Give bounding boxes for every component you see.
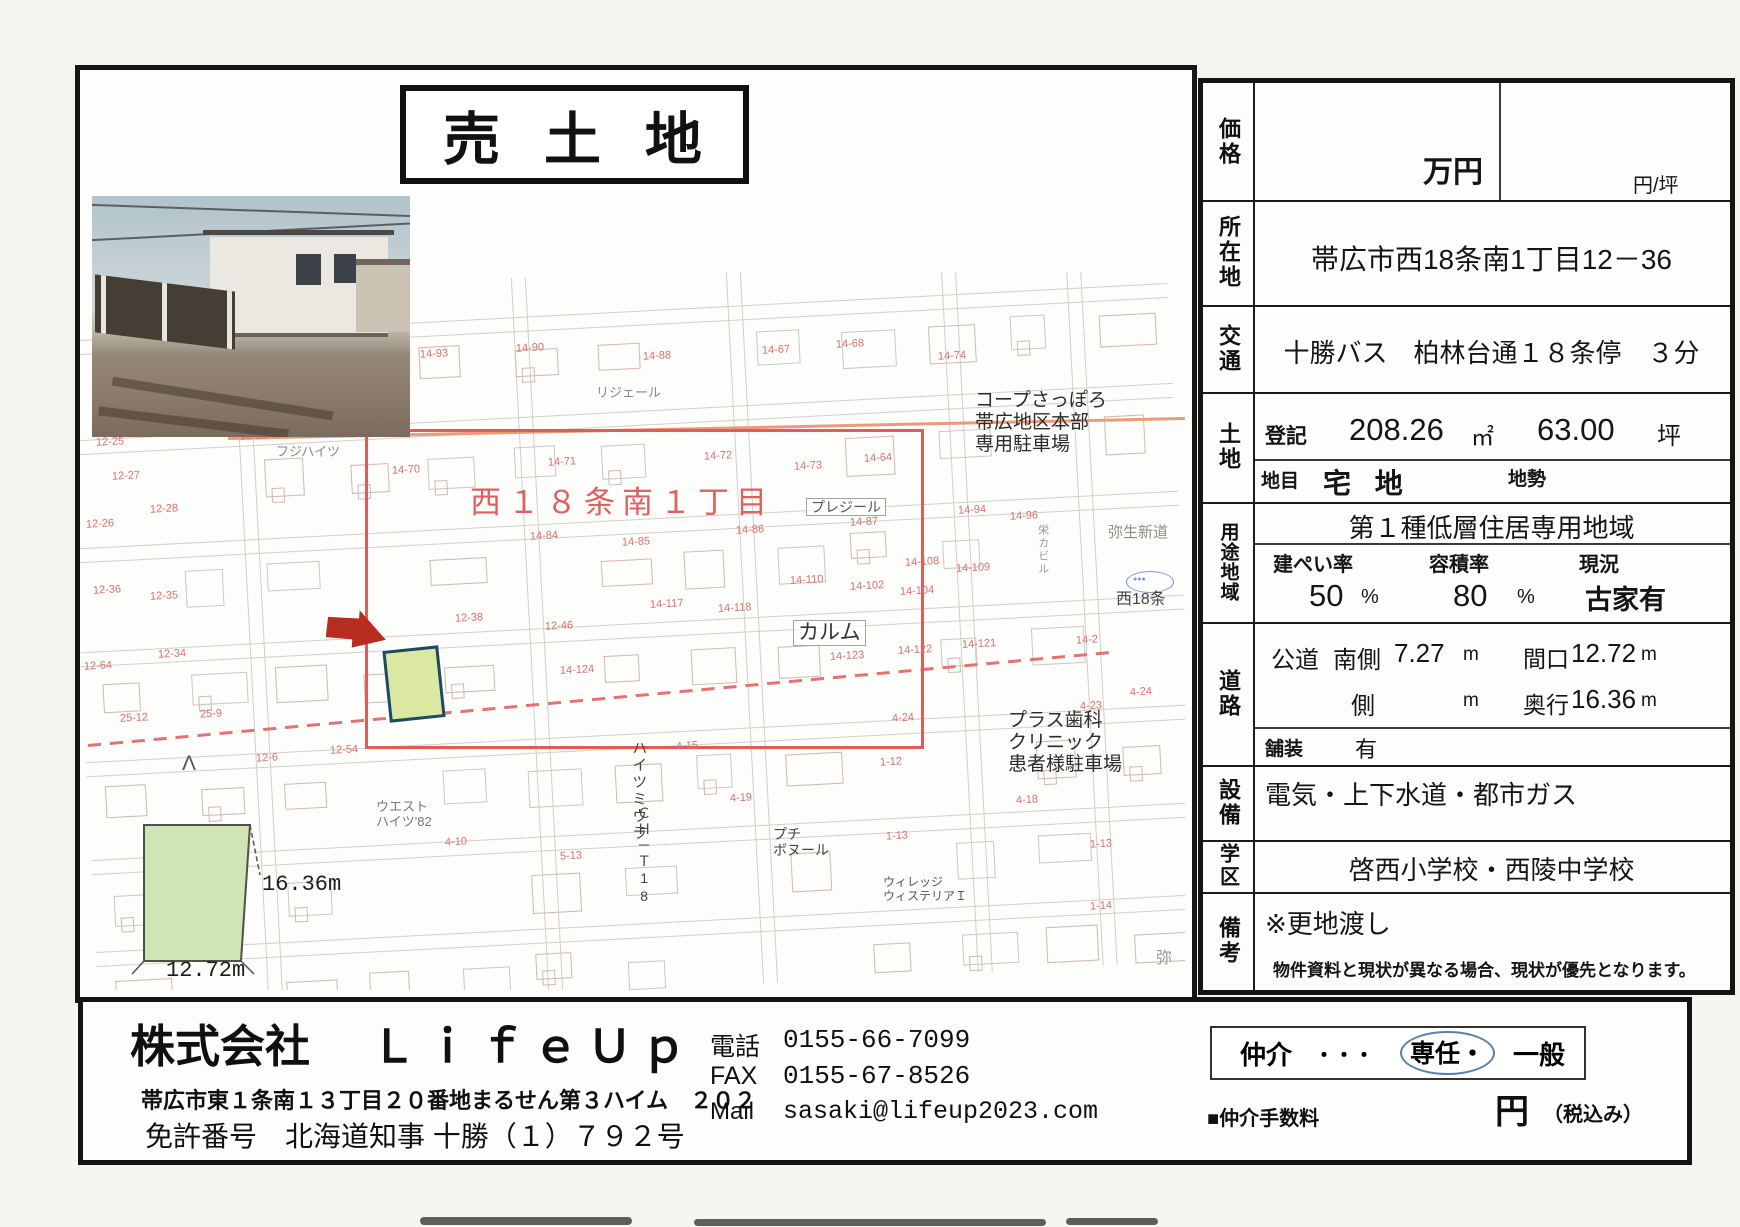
row-utilities-label: 設備 xyxy=(1203,765,1253,840)
page-title: 売 土 地 xyxy=(443,94,716,176)
row-school: 学区 啓西小学校・西陵中学校 xyxy=(1203,840,1730,894)
row-land: 土地 登記 208.26 ㎡ 63.00 坪 地目 宅 地 地勢 xyxy=(1203,392,1730,504)
property-table: 価格 万円 円/坪 所在地 帯広市西18条南1丁目12－36 交通 十勝バス 柏… xyxy=(1198,78,1735,995)
far-value: 80 xyxy=(1453,578,1487,614)
access-value: 十勝バス 柏林台通１８条停 ３分 xyxy=(1253,333,1730,370)
price-per-tsubo-unit: 円/坪 xyxy=(1633,169,1679,198)
company-address: 帯広市東１条南１３丁目２０番地まるせん第３ハイム ２０２ xyxy=(141,1083,756,1115)
road-type: 公道 xyxy=(1271,640,1319,675)
phone-label: 電話 xyxy=(710,1027,760,1063)
company-prefix: 株式会社 xyxy=(130,1010,310,1075)
bcr-label: 建ぺい率 xyxy=(1273,548,1353,577)
paving-label: 舗装 xyxy=(1265,734,1303,761)
company-footer: 株式会社 ＬｉｆｅＵｐ 帯広市東１条南１３丁目２０番地まるせん第３ハイム ２０２… xyxy=(78,997,1692,1165)
land-area-tsubo: 63.00 xyxy=(1537,412,1615,448)
license-number: 免許番号 北海道知事 十勝（１）７９２号 xyxy=(145,1115,685,1155)
powerline xyxy=(92,204,410,219)
scan-artifact xyxy=(420,1217,632,1225)
broker-ippan: 一般 xyxy=(1513,1035,1565,1072)
location-value: 帯広市西18条南1丁目12－36 xyxy=(1253,238,1730,278)
broker-sennin-circled: 専任・ xyxy=(1400,1031,1495,1075)
remarks-note: 物件資料と現状が異なる場合、現状が優先となります。 xyxy=(1273,956,1696,981)
far-label: 容積率 xyxy=(1429,548,1489,577)
row-remarks: 備考 ※更地渡し 物件資料と現状が異なる場合、現状が優先となります。 xyxy=(1203,892,1730,990)
row-location-label: 所在地 xyxy=(1203,200,1253,305)
row-price: 価格 万円 円/坪 xyxy=(1203,83,1730,202)
land-sqm-unit: ㎡ xyxy=(1471,418,1494,452)
utilities-value: 電気・上下水道・都市ガス xyxy=(1265,775,1577,812)
land-area-sqm: 208.26 xyxy=(1349,412,1444,448)
row-price-label: 価格 xyxy=(1203,83,1253,200)
fax-label: FAX xyxy=(710,1062,757,1091)
row-location: 所在地 帯広市西18条南1丁目12－36 xyxy=(1203,200,1730,307)
depth-dimension: 16.36m xyxy=(262,872,341,897)
remarks-value: ※更地渡し xyxy=(1265,904,1391,941)
bus-stop-icon xyxy=(1126,571,1174,593)
photo-window xyxy=(334,254,356,283)
fax-number: 0155-67-8526 xyxy=(783,1061,970,1091)
school-value: 啓西小学校・西陵中学校 xyxy=(1253,850,1730,887)
price-unit: 万円 xyxy=(1423,147,1483,191)
row-road: 道路 公道 南側 7.27 m 間口 12.72 m 側 m 奥行 16.36 … xyxy=(1203,622,1730,767)
land-category-label: 地目 xyxy=(1261,466,1299,493)
broker-type-box: 仲介 ・・・ 専任・ 一般 xyxy=(1210,1026,1586,1080)
far-unit: % xyxy=(1517,586,1535,609)
fee-tax-note: （税込み） xyxy=(1543,1098,1643,1127)
fee-label: ■仲介手数料 xyxy=(1207,1102,1319,1131)
locator-arrow-icon xyxy=(326,608,406,670)
row-school-label: 学区 xyxy=(1203,840,1253,892)
company-name: ＬｉｆｅＵｐ xyxy=(371,1010,695,1075)
frontage-label: 間口 xyxy=(1523,640,1569,674)
row-road-label: 道路 xyxy=(1203,622,1253,765)
land-category: 宅 地 xyxy=(1323,462,1411,502)
frontage-value: 12.72 xyxy=(1571,638,1636,669)
road-m1: m xyxy=(1463,644,1479,666)
phone-number: 0155-66-7099 xyxy=(783,1025,970,1055)
road-m4: m xyxy=(1641,690,1657,712)
title-box: 売 土 地 xyxy=(400,85,749,184)
photo-window xyxy=(296,254,321,285)
photo-driveway xyxy=(99,407,289,437)
row-land-label: 土地 xyxy=(1203,392,1253,502)
mail-address: sasaki@lifeup2023.com xyxy=(783,1097,1098,1126)
land-tsubo-unit: 坪 xyxy=(1657,416,1681,451)
land-terrain-label: 地勢 xyxy=(1508,464,1546,491)
broker-label: 仲介 xyxy=(1240,1035,1292,1072)
row-access-label: 交通 xyxy=(1203,305,1253,392)
road-m3: m xyxy=(1463,690,1479,712)
bcr-unit: % xyxy=(1361,586,1379,609)
depth-value: 16.36 xyxy=(1571,684,1636,715)
fee-yen: 円 xyxy=(1495,1084,1529,1133)
district-label: 西１８条南１丁目 xyxy=(470,477,774,522)
status-label: 現況 xyxy=(1579,548,1619,577)
status-value: 古家有 xyxy=(1585,578,1666,617)
row-zoning-label: 用途地域 xyxy=(1203,502,1253,622)
width-dimension: 12.72m xyxy=(166,958,245,983)
land-registered-label: 登記 xyxy=(1265,420,1307,450)
photo-neighbor-house xyxy=(356,259,410,332)
row-remarks-label: 備考 xyxy=(1203,892,1253,990)
row-utilities: 設備 電気・上下水道・都市ガス xyxy=(1203,765,1730,842)
mail-label: Mail xyxy=(710,1098,754,1126)
property-photo xyxy=(92,196,410,437)
lot-shape-diagram xyxy=(130,815,350,980)
road-side2: 側 xyxy=(1351,686,1375,721)
photo-roof xyxy=(203,230,394,235)
scan-artifact xyxy=(1066,1218,1158,1225)
row-zoning: 用途地域 第１種低層住居専用地域 建ぺい率 容積率 現況 50 % 80 % 古… xyxy=(1203,502,1730,624)
road-side1: 南側 xyxy=(1333,640,1381,675)
road-m2: m xyxy=(1641,644,1657,666)
depth-label: 奥行 xyxy=(1523,686,1569,720)
flyer-page: 売 土 地 西１８条南１丁目 16.36m 12.72m コープさっぽろ 帯広地… xyxy=(0,0,1740,1227)
bcr-value: 50 xyxy=(1309,578,1343,614)
broker-dots: ・・・ xyxy=(1314,1039,1374,1068)
zoning-zone: 第１種低層住居専用地域 xyxy=(1253,508,1730,545)
road-width1: 7.27 xyxy=(1394,638,1445,669)
paving-value: 有 xyxy=(1355,732,1377,764)
row-access: 交通 十勝バス 柏林台通１８条停 ３分 xyxy=(1203,305,1730,394)
scan-artifact xyxy=(694,1219,1046,1226)
